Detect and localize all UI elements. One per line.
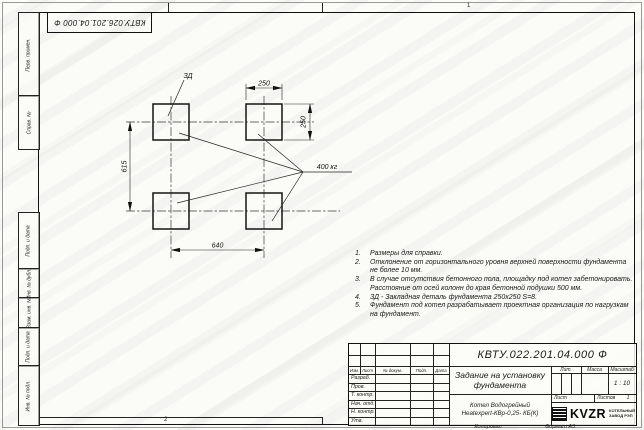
- drawing-sheet: 1 2 КВТУ.026.201.04.000 Ф Перв. примен. …: [0, 0, 644, 430]
- note-number: 2.: [352, 259, 370, 276]
- format-label: Формат А3: [528, 424, 592, 430]
- note-item: 2.Отклонение от горизонтального уровня в…: [352, 259, 636, 276]
- dim-250-right: 250: [301, 116, 308, 129]
- leader-lines: [168, 80, 352, 221]
- sheet-label: Лист: [551, 394, 594, 402]
- grid-line: [571, 373, 572, 394]
- note-number: 5.: [352, 302, 370, 319]
- mass-label: Масса: [581, 366, 608, 373]
- row-label-tkontr: Т. контр.: [349, 391, 375, 400]
- note-item: 1.Размеры для справки.: [352, 250, 636, 259]
- note-text: Фундамент под котел разрабатывает проект…: [370, 302, 636, 319]
- col-header-podp: Подп.: [410, 366, 433, 374]
- grid-line: [375, 344, 376, 425]
- grid-line: [433, 344, 434, 425]
- grid-line: [349, 355, 449, 356]
- lit-label: Лит.: [551, 366, 581, 373]
- row-label-nachotd: Нач. отд.: [349, 400, 375, 409]
- row-label-razrab: Разраб.: [349, 374, 375, 383]
- note-text: Отклонение от горизонтального уровня вер…: [370, 259, 636, 276]
- notes-list: 1.Размеры для справки. 2.Отклонение от г…: [352, 250, 636, 320]
- title-block: Изм. Лист № докум. Подп. Дата Разраб. Пр…: [348, 343, 637, 426]
- dimension-lines: [130, 88, 310, 250]
- scale-value: 1 : 10: [608, 373, 636, 394]
- col-header-docnum: № докум.: [375, 366, 410, 374]
- foundation-plates: [153, 104, 282, 229]
- product-name-line2: Heatexpert-КВр-0,25- КБ(К): [462, 410, 539, 418]
- centerlines: [126, 96, 340, 258]
- note-item: 3.В случае отсутствия бетонного пола, пл…: [352, 276, 636, 293]
- row-label-nkontr: Н. контр.: [349, 408, 375, 417]
- note-item: 5.Фундамент под котел разрабатывает прое…: [352, 302, 636, 319]
- product-name: Котел Водогрейный Heatexpert-КВр-0,25- К…: [449, 394, 551, 425]
- document-title-line2: фундамента: [474, 380, 526, 390]
- document-title-line1: Задание на установку: [455, 370, 545, 380]
- note-number: 1.: [352, 250, 370, 259]
- note-text: В случае отсутствия бетонного пола, площ…: [370, 276, 636, 293]
- extension-lines: [246, 84, 314, 140]
- sheets-label: Листов: [594, 394, 620, 402]
- note-item: 4.ЗД - Закладная деталь фундамента 250х2…: [352, 294, 636, 303]
- dim-615-left: 615: [122, 161, 129, 173]
- company-logo: KVZR КОТЕЛЬНЫЙ ЗАВОД РЭП: [551, 402, 636, 425]
- sheets-value: 1: [620, 394, 636, 402]
- grid-line: [410, 344, 411, 425]
- note-number: 4.: [352, 294, 370, 303]
- note-text: Размеры для справки.: [370, 250, 636, 259]
- copied-label: Копировал: [440, 424, 536, 430]
- grid-line: [561, 373, 562, 394]
- document-title: Задание на установку фундамента: [449, 366, 551, 394]
- kvzr-logo-icon: [552, 407, 567, 421]
- embedded-detail-label: ЗД: [184, 73, 193, 80]
- scale-label: Масштаб: [608, 366, 636, 373]
- row-label-utv: Утв.: [349, 417, 375, 426]
- dim-250-top: 250: [257, 81, 270, 88]
- row-label-prov: Пров.: [349, 383, 375, 392]
- load-label: 400 кг: [317, 164, 338, 171]
- dim-640-bottom: 640: [212, 243, 224, 250]
- note-text: ЗД - Закладная деталь фундамента 250х250…: [370, 294, 636, 303]
- kvzr-logo-subtitle: КОТЕЛЬНЫЙ ЗАВОД РЭП: [609, 409, 635, 418]
- kvzr-logo-text: KVZR: [570, 407, 606, 421]
- col-header-data: Дата: [433, 366, 449, 374]
- col-header-izm: Изм.: [349, 366, 360, 374]
- note-number: 3.: [352, 276, 370, 293]
- document-designation: КВТУ.022.201.04.000 Ф: [449, 344, 636, 366]
- col-header-list: Лист: [360, 366, 375, 374]
- product-name-line1: Котел Водогрейный: [470, 402, 530, 410]
